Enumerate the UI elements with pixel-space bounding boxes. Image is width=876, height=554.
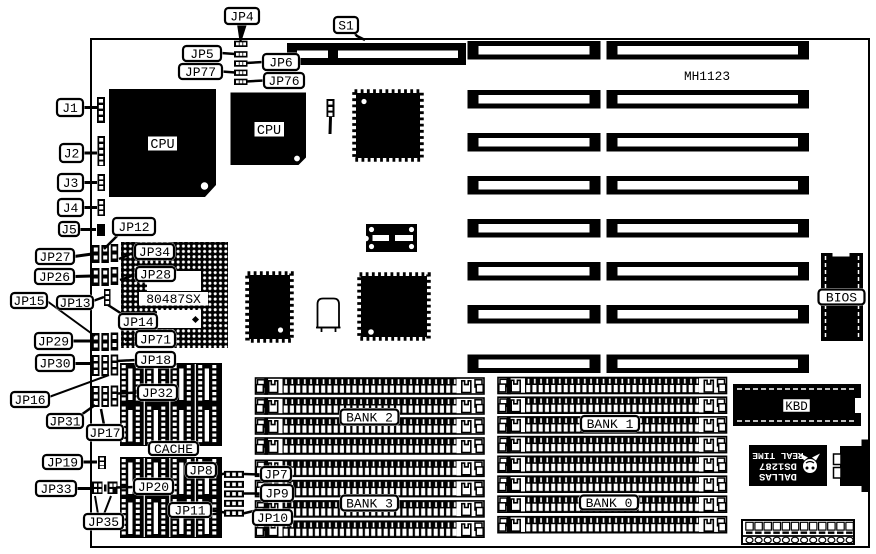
svg-text:JP32: JP32 <box>142 386 173 401</box>
svg-text:J4: J4 <box>63 201 79 216</box>
svg-text:JP17: JP17 <box>89 426 120 441</box>
svg-text:KBD: KBD <box>785 400 808 414</box>
svg-text:JP16: JP16 <box>14 393 45 408</box>
svg-text:JP9: JP9 <box>265 486 288 501</box>
svg-text:J2: J2 <box>64 146 80 161</box>
svg-text:JP30: JP30 <box>39 356 70 371</box>
svg-text:JP14: JP14 <box>122 315 153 330</box>
svg-text:JP29: JP29 <box>38 334 69 349</box>
svg-text:JP76: JP76 <box>268 74 299 89</box>
svg-text:MH1123: MH1123 <box>684 69 730 84</box>
svg-text:JP28: JP28 <box>140 267 171 282</box>
svg-text:JP31: JP31 <box>49 414 80 429</box>
svg-text:JP13: JP13 <box>59 296 90 311</box>
svg-text:JP4: JP4 <box>230 9 254 24</box>
svg-text:CPU: CPU <box>150 138 174 153</box>
svg-text:J5: J5 <box>61 222 77 237</box>
svg-text:BIOS: BIOS <box>826 290 857 305</box>
svg-text:JP11: JP11 <box>174 503 205 518</box>
svg-text:JP71: JP71 <box>140 332 171 347</box>
svg-text:80487SX: 80487SX <box>146 292 201 307</box>
svg-text:JP19: JP19 <box>47 455 78 470</box>
svg-text:JP10: JP10 <box>257 511 288 526</box>
svg-text:CACHE: CACHE <box>154 442 193 457</box>
svg-text:JP35: JP35 <box>88 515 119 530</box>
svg-text:REAL TIME: REAL TIME <box>752 450 804 461</box>
svg-text:JP33: JP33 <box>40 482 71 497</box>
svg-text:S1: S1 <box>338 18 354 33</box>
svg-text:BANK 0: BANK 0 <box>586 496 633 511</box>
svg-text:BANK 3: BANK 3 <box>346 496 393 511</box>
svg-text:BANK 1: BANK 1 <box>587 417 634 432</box>
svg-text:JP26: JP26 <box>39 270 70 285</box>
svg-text:JP15: JP15 <box>13 294 44 309</box>
svg-text:CPU: CPU <box>257 124 281 139</box>
svg-text:JP5: JP5 <box>190 47 213 62</box>
svg-text:BANK 2: BANK 2 <box>346 410 393 425</box>
svg-text:J1: J1 <box>62 101 78 116</box>
svg-text:JP8: JP8 <box>189 463 212 478</box>
svg-text:JP6: JP6 <box>269 55 292 70</box>
svg-text:JP27: JP27 <box>39 250 70 265</box>
svg-text:JP77: JP77 <box>185 65 216 80</box>
svg-text:JP18: JP18 <box>140 353 171 368</box>
svg-text:JP20: JP20 <box>138 480 169 495</box>
svg-text:J3: J3 <box>63 176 79 191</box>
svg-text:JP12: JP12 <box>118 220 149 235</box>
svg-text:JP7: JP7 <box>264 467 287 482</box>
svg-text:JP34: JP34 <box>139 245 170 260</box>
